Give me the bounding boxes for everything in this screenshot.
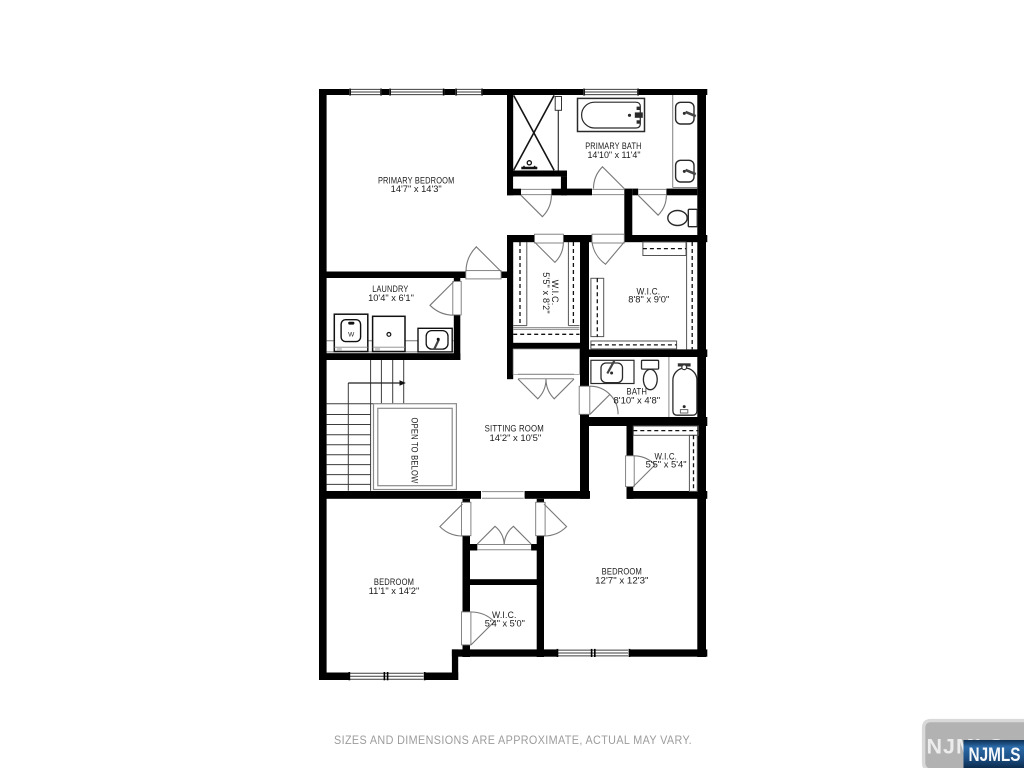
svg-text:W: W: [348, 332, 355, 339]
svg-text:8'10" x 4'8": 8'10" x 4'8": [614, 395, 661, 405]
svg-text:14'7" x 14'3": 14'7" x 14'3": [391, 184, 442, 194]
svg-text:SIZES AND DIMENSIONS ARE APPRO: SIZES AND DIMENSIONS ARE APPROXIMATE, AC…: [334, 735, 692, 747]
svg-text:11'1" x 14'2": 11'1" x 14'2": [369, 586, 420, 596]
svg-text:14'10" x 11'4": 14'10" x 11'4": [587, 150, 640, 160]
svg-text:NJMLS: NJMLS: [969, 745, 1021, 766]
svg-text:5'5" x 5'4": 5'5" x 5'4": [646, 459, 687, 469]
svg-text:5'4" x 5'0": 5'4" x 5'0": [485, 619, 525, 629]
svg-text:8'8" x 9'0": 8'8" x 9'0": [628, 294, 669, 304]
svg-text:10'4" x 6'1": 10'4" x 6'1": [368, 293, 414, 303]
svg-text:12'7" x 12'3": 12'7" x 12'3": [595, 575, 648, 585]
svg-text:14'2" x 10'5": 14'2" x 10'5": [490, 433, 542, 443]
svg-text:OPEN TO BELOW: OPEN TO BELOW: [409, 418, 420, 485]
svg-text:5'5" x 8'2": 5'5" x 8'2": [541, 272, 551, 314]
